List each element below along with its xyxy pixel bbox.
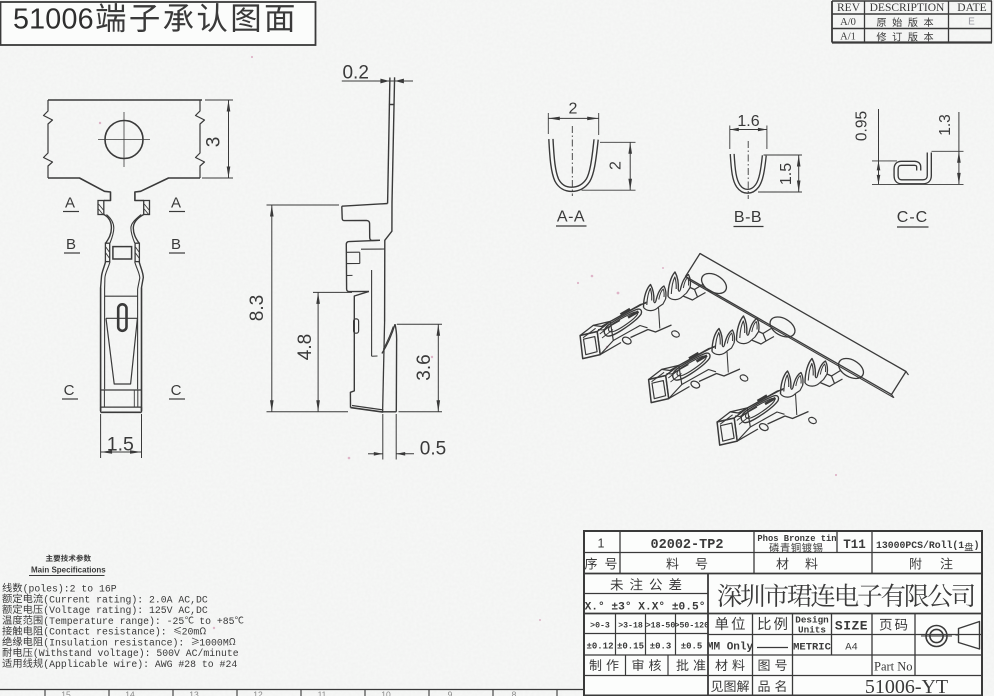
svg-text:METRIC: METRIC [793,642,832,654]
svg-text:8.3: 8.3 [247,295,268,321]
svg-text:SIZE: SIZE [835,619,868,634]
svg-text:Units: Units [798,625,826,636]
svg-text:E: E [968,17,975,28]
svg-text:±0.15: ±0.15 [617,642,644,652]
svg-text:13000PCS/Roll(1: 13000PCS/Roll(1 [876,540,964,551]
svg-text:3: 3 [204,137,225,148]
svg-text:B: B [171,236,181,253]
svg-text:14: 14 [125,690,135,696]
svg-text:X.° ±3° X.X° ±0.5°: X.° ±3° X.X° ±0.5° [585,602,706,614]
svg-text:1.6: 1.6 [737,113,759,130]
svg-text:REV: REV [837,2,861,14]
svg-text:0.5: 0.5 [420,439,446,460]
svg-text:T11: T11 [843,538,866,552]
svg-text:±0.3: ±0.3 [650,642,672,652]
svg-text:12: 12 [253,690,263,696]
svg-text:(Temperature range): -25: (Temperature range): -25 [43,616,184,627]
svg-text:C: C [171,382,182,399]
svg-text:0.2: 0.2 [342,63,368,84]
svg-text:51006: 51006 [13,4,94,36]
svg-text:(Current rating): 2.0A AC,DC: (Current rating): 2.0A AC,DC [43,594,208,605]
svg-text:2: 2 [569,101,578,118]
svg-text:±0.5: ±0.5 [681,642,703,652]
svg-text:A: A [65,195,75,212]
svg-text:A4: A4 [845,642,858,654]
svg-text:B: B [66,236,76,253]
svg-text:>0-3: >0-3 [590,622,610,631]
svg-text:9: 9 [448,690,453,696]
svg-text:(poles):2 to 16P: (poles):2 to 16P [23,584,117,595]
svg-text:10: 10 [381,690,391,696]
svg-text:1.5: 1.5 [107,434,134,456]
svg-text:8: 8 [512,690,517,696]
svg-text:20m: 20m [182,627,200,638]
svg-text:1000M: 1000M [199,637,229,648]
svg-text:0.95: 0.95 [854,111,871,141]
svg-text:B-B: B-B [734,209,762,226]
svg-text:>18-50: >18-50 [646,622,676,631]
svg-text:3.6: 3.6 [414,354,435,380]
svg-text:Phos Bronze tin: Phos Bronze tin [757,534,836,544]
svg-text:15: 15 [61,690,71,696]
svg-text:(Applicable wire): AWG #28 to: (Applicable wire): AWG #28 to #24 [43,659,237,670]
svg-text:>3-18: >3-18 [618,622,643,631]
svg-text:(Insulation resistance):: (Insulation resistance): [43,637,190,648]
svg-text:±0.12: ±0.12 [586,642,613,652]
svg-text:to +85: to +85 [193,616,234,627]
svg-text:Main Specifications: Main Specifications [31,566,106,575]
svg-text:DATE: DATE [957,2,986,14]
svg-text:13: 13 [189,690,199,696]
svg-text:C: C [64,382,75,399]
svg-text:02002-TP2: 02002-TP2 [651,538,724,553]
svg-text:1.3: 1.3 [937,114,954,136]
svg-text:Part No: Part No [874,660,913,674]
svg-text:(Contact resistance):: (Contact resistance): [43,627,172,638]
svg-text:1.5: 1.5 [778,163,795,185]
svg-text:1: 1 [598,537,605,551]
svg-text:4.8: 4.8 [295,334,316,360]
svg-text:): ) [974,540,980,551]
svg-text:(Withstand voltage): 500V AC/m: (Withstand voltage): 500V AC/minute [33,648,239,659]
svg-text:DESCRIPTION: DESCRIPTION [870,2,945,14]
svg-text:11: 11 [318,690,327,696]
svg-text:A-A: A-A [557,209,585,226]
svg-text:(Voltage rating): 125V AC,DC: (Voltage rating): 125V AC,DC [43,605,208,616]
svg-text:C-C: C-C [897,209,928,226]
svg-text:2: 2 [608,161,625,170]
svg-text:MM Only: MM Only [707,642,754,654]
svg-text:A/1: A/1 [840,32,856,43]
svg-text:51006-YT: 51006-YT [865,676,948,696]
svg-text:>50-120: >50-120 [675,622,709,631]
svg-text:A/0: A/0 [840,17,856,28]
svg-text:A: A [171,195,181,212]
